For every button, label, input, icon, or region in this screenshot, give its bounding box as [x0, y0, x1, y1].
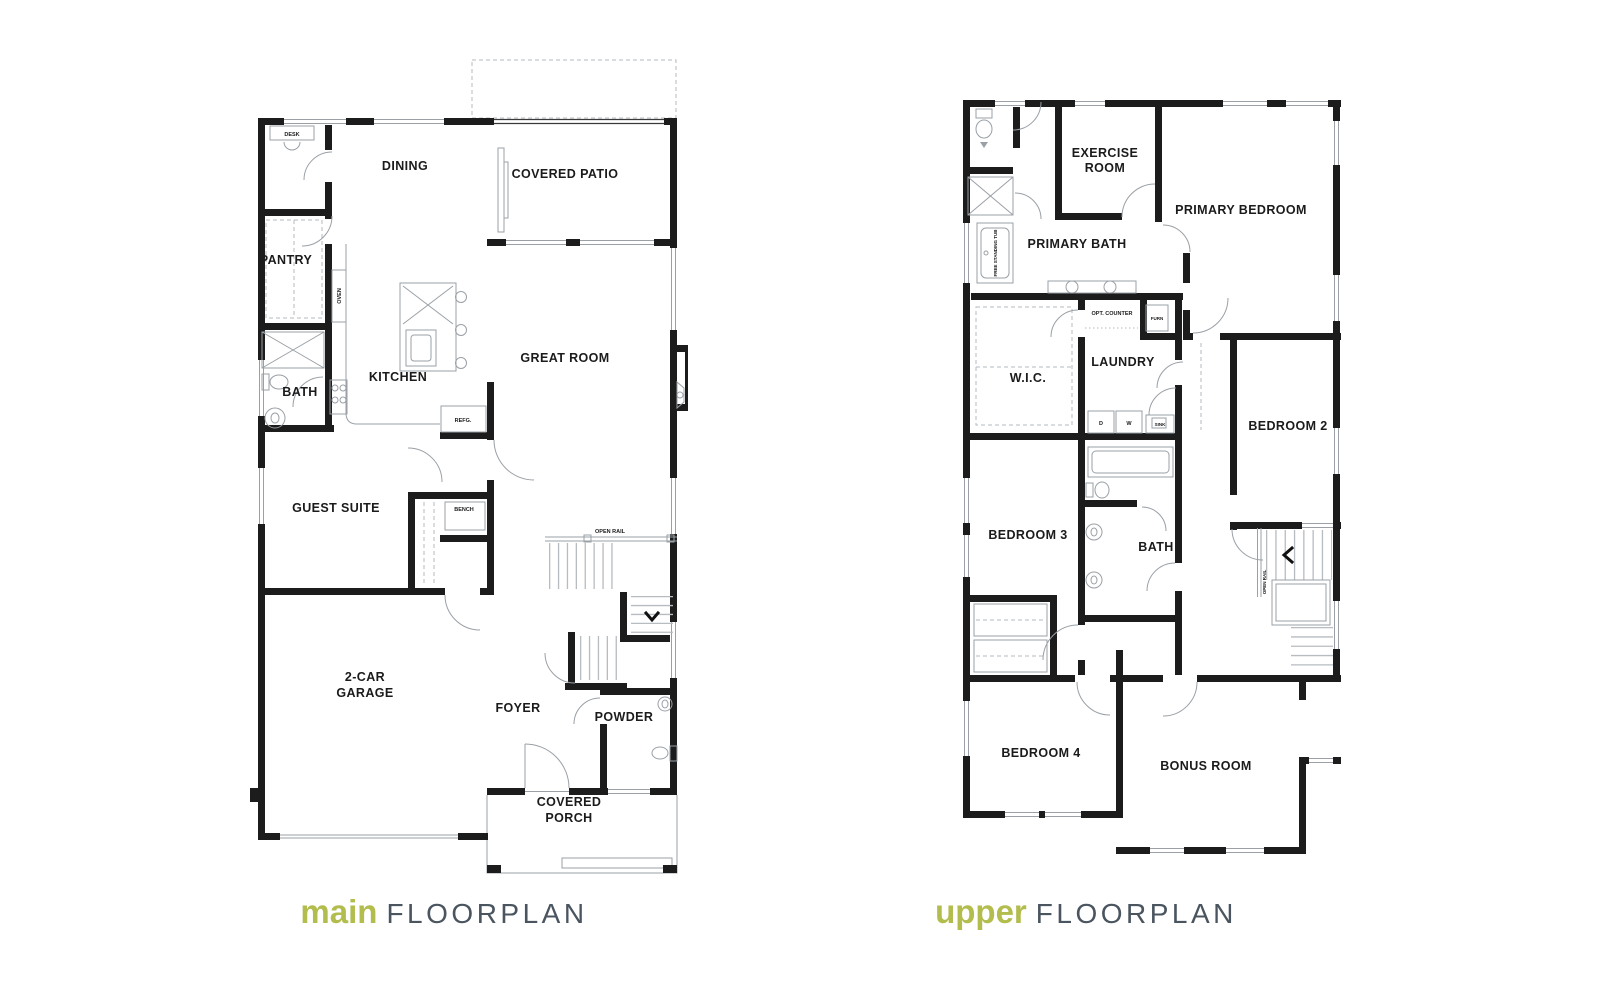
windows [258, 118, 677, 840]
patio-slider [498, 148, 504, 232]
patio-roof-outline [472, 60, 676, 118]
room-label-guest-suite: GUEST SUITE [292, 501, 380, 515]
room-label-garage-2: GARAGE [336, 686, 393, 700]
main-floorplan-title: mainFLOORPLAN [244, 893, 644, 931]
bath-sink [1086, 572, 1102, 588]
vanity-sink [1104, 281, 1116, 293]
room-label-dryer: D [1099, 421, 1103, 427]
room-label-garage-1: 2-CAR [345, 670, 385, 684]
main-title-accent: main [300, 893, 377, 930]
room-label-bath: BATH [282, 385, 317, 399]
room-label-wic: W.I.C. [1010, 371, 1046, 385]
room-label-primary-bedroom: PRIMARY BEDROOM [1175, 203, 1307, 217]
toilet-upper [976, 120, 992, 138]
room-label-washer: W [1126, 421, 1132, 427]
upper-floorplan-drawing: EXERCISE ROOM PRIMARY BEDROOM PRIMARY BA… [920, 85, 1350, 860]
powder-sink [658, 697, 672, 711]
room-label-open-rail: OPEN RAIL [1262, 570, 1267, 595]
vanity [1048, 281, 1136, 293]
main-floorplan-drawing: DESK DINING COVERED PATIO PANTRY OVEN KI… [240, 30, 700, 875]
stool [456, 358, 467, 369]
room-label-dining: DINING [382, 159, 428, 173]
room-label-bedroom4: BEDROOM 4 [1001, 746, 1080, 760]
walls [250, 118, 688, 873]
shower-head [980, 142, 988, 148]
room-label-covered-patio: COVERED PATIO [512, 167, 619, 181]
room-label-kitchen: KITCHEN [369, 370, 427, 384]
room-labels: DESK DINING COVERED PATIO PANTRY OVEN KI… [260, 132, 654, 825]
room-label-furn: FURN [1151, 316, 1164, 321]
room-label-powder: POWDER [595, 710, 654, 724]
room-label-exercise-2: ROOM [1085, 161, 1126, 175]
room-label-laundry: LAUNDRY [1091, 355, 1155, 369]
wic-shelves [976, 307, 1072, 425]
stool [456, 292, 467, 303]
room-label-porch-1: COVERED [537, 795, 602, 809]
stairs [1258, 528, 1333, 673]
room-label-bedroom2: BEDROOM 2 [1248, 419, 1327, 433]
floorplan-page: DESK DINING COVERED PATIO PANTRY OVEN KI… [0, 0, 1620, 1000]
room-label-open-rail: OPEN RAIL [595, 529, 626, 535]
room-label-bedroom3: BEDROOM 3 [988, 528, 1067, 542]
room-label-desk: DESK [284, 132, 299, 138]
room-label-refg: REFG. [455, 418, 472, 424]
bath-toilet [1095, 482, 1109, 498]
room-label-bonus-room: BONUS ROOM [1160, 759, 1252, 773]
stool [456, 325, 467, 336]
room-label-primary-bath: PRIMARY BATH [1027, 237, 1126, 251]
kitchen-island [400, 283, 456, 371]
bath-sink [1086, 524, 1102, 540]
room-label-bench: BENCH [454, 507, 474, 513]
room-label-oven: OVEN [337, 288, 343, 304]
room-label-exercise-1: EXERCISE [1072, 146, 1138, 160]
powder-toilet [652, 747, 668, 759]
room-label-sink: SINK [1155, 422, 1167, 427]
main-title-rest: FLOORPLAN [386, 898, 587, 929]
upper-title-rest: FLOORPLAN [1036, 898, 1237, 929]
kitchen-counter [346, 244, 440, 424]
toilet-tank [976, 109, 992, 118]
room-label-bath: BATH [1138, 540, 1173, 554]
upper-title-accent: upper [935, 893, 1027, 930]
vanity-sink [1066, 281, 1078, 293]
upper-floorplan-title: upperFLOORPLAN [886, 893, 1286, 931]
room-label-foyer: FOYER [495, 701, 540, 715]
room-label-porch-2: PORCH [545, 811, 592, 825]
toilet-tank [1086, 483, 1093, 497]
room-label-opt-counter: OPT. COUNTER [1092, 311, 1133, 317]
room-label-pantry: PANTRY [260, 253, 313, 267]
fixtures [262, 126, 684, 761]
room-label-freestanding-tub: FREE STANDING TUB [993, 229, 998, 277]
desk-chair [284, 142, 300, 150]
room-label-great-room: GREAT ROOM [520, 351, 609, 365]
